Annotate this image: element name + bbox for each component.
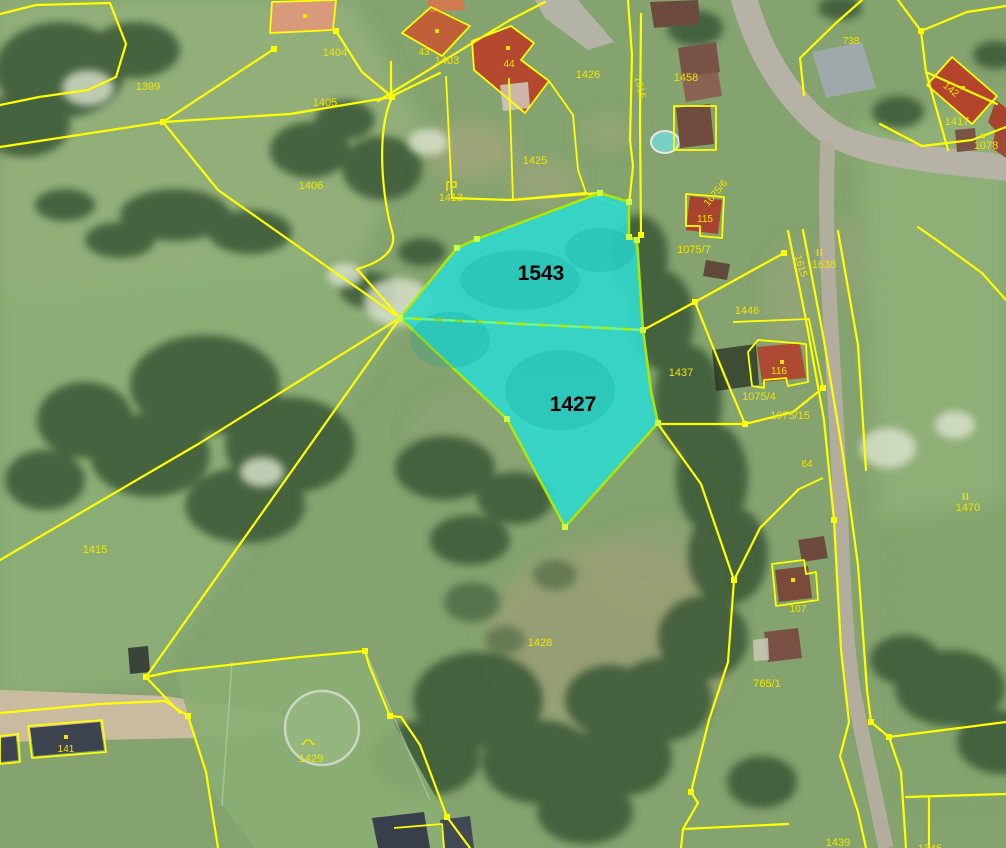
shed-dark <box>128 646 150 674</box>
parcel-label: 1078 <box>974 140 998 152</box>
parcel-label: 1345 <box>918 843 942 848</box>
barn-dark <box>372 812 430 848</box>
parcel-label: 1446 <box>735 305 759 317</box>
parcel-label: 1406 <box>299 180 323 192</box>
road-class-symbol: II <box>816 248 824 259</box>
point-symbol-icon <box>961 86 965 90</box>
barn-dark <box>0 736 18 762</box>
parcel-label: 1437 <box>669 367 693 379</box>
parcel-label: 1638 <box>812 259 836 271</box>
parcel-label: 1470 <box>956 502 980 514</box>
parcel-label: 1426 <box>576 69 600 81</box>
parcel-label: 64 <box>801 459 813 470</box>
building <box>650 0 700 28</box>
house-number-label: 116 <box>771 366 787 377</box>
building <box>676 104 714 148</box>
house-number-label: 43 <box>418 47 430 58</box>
parcel-label: 1439 <box>826 837 850 848</box>
house-number-label: 141 <box>58 744 75 755</box>
parcel-label: 1075/7 <box>677 244 711 256</box>
parcel-label: 1399 <box>136 81 160 93</box>
parcel-label: 1428 <box>528 637 552 649</box>
parcel-label: 765/1 <box>753 678 781 690</box>
parcel-label: 1429 <box>299 753 323 765</box>
house-number-label: 115 <box>697 214 713 225</box>
terrace <box>753 638 769 661</box>
house-number-label: 44 <box>503 59 515 70</box>
parcel-label: 738 <box>843 36 860 47</box>
point-symbol-icon <box>435 29 439 33</box>
building <box>764 628 802 662</box>
road-class-symbol: II <box>962 492 970 503</box>
parcel-label: 1404 <box>323 47 347 59</box>
parcel-label: 1413 <box>439 192 463 204</box>
point-symbol-icon <box>64 735 68 739</box>
parcel-label: 1075/15 <box>770 410 810 422</box>
parcel-label: 1425 <box>523 155 547 167</box>
parcel-label: 1458 <box>674 72 698 84</box>
map-canvas[interactable]: 1543 1427 1399 1404 43 1403 44 1426 1405… <box>0 0 1006 848</box>
parcel-label: 1405 <box>313 97 337 109</box>
point-symbol-icon <box>981 134 985 138</box>
highlighted-parcel-number: 1427 <box>550 393 597 416</box>
house-number-label: 107 <box>790 604 807 615</box>
parcel-label: 1417 <box>945 116 969 128</box>
map-viewport[interactable]: 1543 1427 1399 1404 43 1403 44 1426 1405… <box>0 0 1006 848</box>
parcel-label: 1075/4 <box>742 391 776 403</box>
building <box>427 0 466 12</box>
point-symbol-icon <box>791 578 795 582</box>
parcel-label: 1415 <box>83 544 107 556</box>
point-symbol-icon <box>303 14 307 18</box>
highlighted-parcel-number: 1543 <box>518 262 565 285</box>
point-symbol-icon <box>506 46 510 50</box>
point-symbol-icon <box>780 360 784 364</box>
parcel-label: 1403 <box>435 55 459 67</box>
aerial-photo-layer <box>0 0 1006 848</box>
building <box>798 536 828 562</box>
